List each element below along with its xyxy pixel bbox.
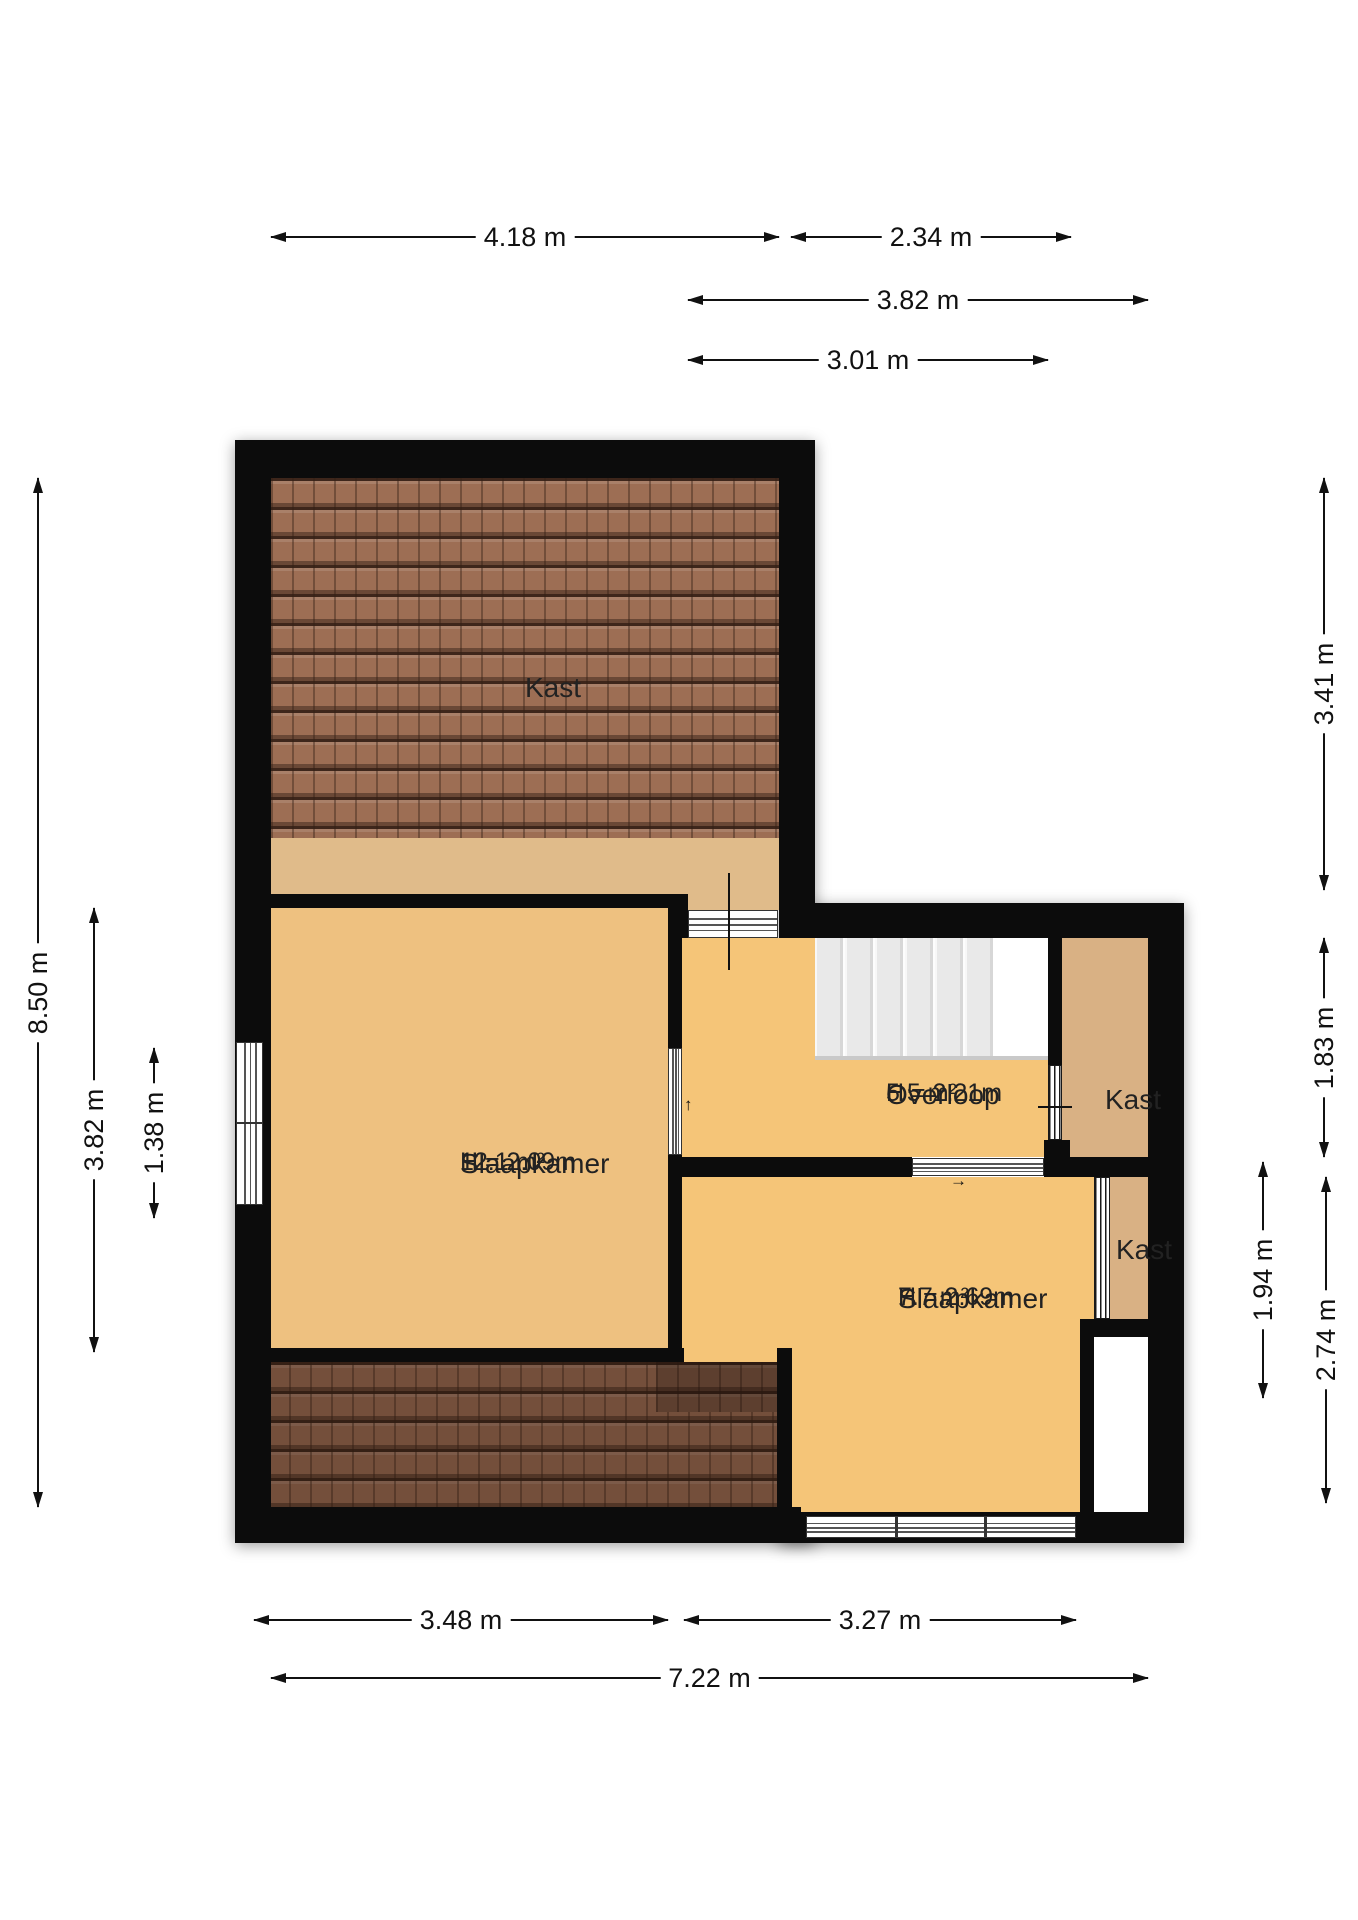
louvre-door (1048, 1065, 1062, 1140)
dimension-label: 3.82 m (869, 285, 968, 315)
dimension-arrowhead (764, 232, 780, 242)
dimension-label: 3.27 m (831, 1605, 930, 1635)
wall (1148, 903, 1184, 1543)
dimension-arrowhead (683, 1615, 699, 1625)
dimension-arrowhead (687, 295, 703, 305)
room-ceiling-height: H = 2.21m (886, 1079, 1002, 1107)
dimension-arrowhead (89, 907, 99, 923)
wall (235, 894, 688, 908)
window-glazing-line (675, 1049, 677, 1154)
dimension-arrowhead (1258, 1161, 1268, 1177)
room-floor (1062, 938, 1148, 1157)
dimension-arrowhead (1033, 355, 1049, 365)
wall (235, 1507, 801, 1543)
window-glazing-line (913, 1163, 1043, 1165)
room-name: Kast (1116, 1234, 1172, 1266)
wall (668, 1157, 912, 1177)
wall (235, 1348, 684, 1362)
room-ceiling-height: H = 2.69m (898, 1283, 1014, 1311)
detail-line (728, 873, 730, 970)
dimension-label: 7.22 m (660, 1663, 759, 1693)
window-glazing-line (807, 1523, 1075, 1525)
dimension-arrowhead (270, 1673, 286, 1683)
wall (1080, 1319, 1094, 1543)
window-v (668, 1048, 682, 1155)
room-name: Kast (525, 672, 581, 704)
wall (235, 440, 815, 478)
room-ceiling-height: H = 2.09m (460, 1148, 576, 1176)
room-floor (684, 894, 779, 910)
dimension-label: 1.83 m (1309, 998, 1339, 1097)
dimension-arrowhead (1321, 1488, 1331, 1504)
dimension-arrowhead (1133, 1673, 1149, 1683)
staircase (815, 938, 1048, 1056)
window-glazing-line (913, 1171, 1043, 1173)
dimension-arrowhead (687, 355, 703, 365)
window-h (912, 1158, 1044, 1176)
dimension-arrowhead (1258, 1383, 1268, 1399)
dimension-label: 1.38 m (139, 1084, 169, 1183)
window-v (236, 1042, 263, 1205)
dimension-arrowhead (89, 1337, 99, 1353)
louvre-door (1094, 1177, 1110, 1319)
dimension-arrowhead (790, 232, 806, 242)
window-glazing-line (807, 1527, 1075, 1529)
window-glazing-line (807, 1531, 1075, 1533)
dimension-arrowhead (1319, 937, 1329, 953)
window-glazing-line (678, 1049, 680, 1154)
room-floor (271, 908, 668, 1348)
dimension-label: 3.48 m (412, 1605, 511, 1635)
dimension-arrowhead (1321, 1176, 1331, 1192)
window-mullion (895, 1517, 898, 1537)
dimension-arrowhead (1319, 1142, 1329, 1158)
dimension-arrowhead (1319, 477, 1329, 493)
wall (1044, 1140, 1070, 1177)
void-area (1094, 1337, 1148, 1508)
wall (235, 440, 271, 1543)
dimension-label: 3.41 m (1309, 635, 1339, 734)
direction-arrow: ↑ (684, 1096, 693, 1113)
window-glazing-line (689, 918, 777, 920)
stair-treads (815, 938, 993, 1056)
stair-edge (815, 1056, 1048, 1060)
dimension-arrowhead (1056, 232, 1072, 242)
wall (779, 440, 815, 938)
dimension-arrowhead (653, 1615, 669, 1625)
dimension-arrowhead (149, 1203, 159, 1219)
wall (1048, 938, 1062, 1065)
dimension-arrowhead (253, 1615, 269, 1625)
roof-area (656, 1362, 777, 1412)
dimension-arrowhead (1319, 875, 1329, 891)
wall (779, 903, 1184, 938)
dimension-label: 3.01 m (819, 345, 918, 375)
dimension-arrowhead (270, 232, 286, 242)
dimension-label: 4.18 m (476, 222, 575, 252)
floorplan-canvas: ↑→KastSlaapkamer12.1 m²H = 2.09mOverloop… (0, 0, 1358, 1920)
dimension-arrowhead (1061, 1615, 1077, 1625)
direction-arrow: → (950, 1172, 967, 1189)
window-glazing-line (689, 924, 777, 926)
dimension-arrowhead (33, 477, 43, 493)
window-h (806, 1516, 1076, 1538)
dimension-arrowhead (149, 1047, 159, 1063)
window-glazing-line (689, 930, 777, 932)
roof-area (271, 478, 779, 838)
window-rail (237, 1122, 262, 1125)
window-glazing-line (672, 1049, 674, 1154)
window-h (688, 910, 778, 938)
room-floor (271, 838, 779, 894)
wall (777, 1348, 792, 1543)
dimension-label: 2.34 m (882, 222, 981, 252)
window-glazing-line (913, 1167, 1043, 1169)
dimension-label: 8.50 m (23, 943, 53, 1042)
window-mullion (984, 1517, 987, 1537)
detail-line (1038, 1106, 1072, 1108)
dimension-arrowhead (1133, 295, 1149, 305)
dimension-arrowhead (33, 1492, 43, 1508)
room-name: Kast (1105, 1084, 1161, 1116)
dimension-label: 3.82 m (79, 1081, 109, 1180)
wall (1094, 1319, 1148, 1337)
dimension-label: 1.94 m (1248, 1231, 1278, 1330)
dimension-label: 2.74 m (1311, 1291, 1341, 1390)
